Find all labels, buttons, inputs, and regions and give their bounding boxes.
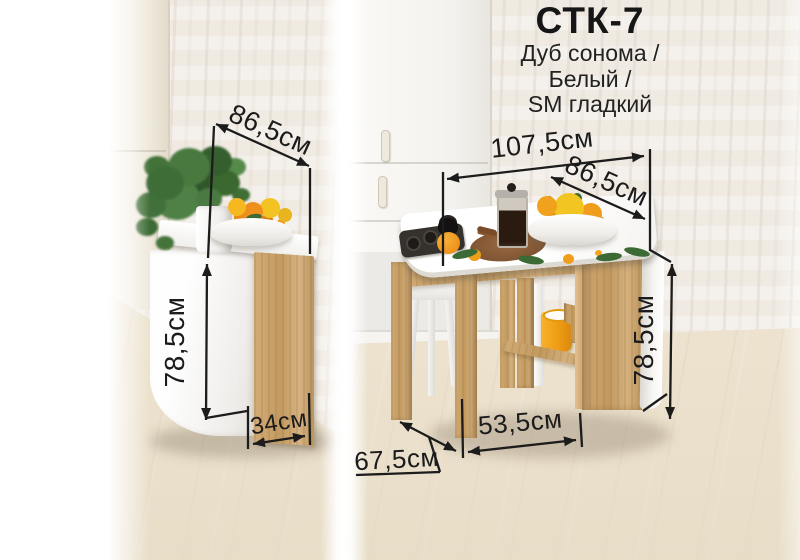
- fruit-bowl: [210, 218, 292, 246]
- cabinet-handle: [378, 176, 387, 208]
- fruit-bowl: [528, 214, 616, 245]
- product-finish-line3: SM гладкий: [462, 92, 718, 118]
- product-title-block: СТК-7 Дуб сонома / Белый / SM гладкий: [462, 2, 718, 118]
- table-leg: [391, 262, 412, 420]
- right-white-vignette: [778, 0, 800, 560]
- product-finish-line2: Белый /: [462, 67, 718, 93]
- coffee-cup: [423, 230, 438, 245]
- folded-table-leaf-wood: [254, 252, 314, 446]
- left-white-vignette: [0, 0, 150, 560]
- product-model: СТК-7: [462, 2, 718, 41]
- fruit-cluster: [537, 196, 557, 216]
- table-leg: [455, 268, 477, 438]
- table-pedestal-panel: [500, 280, 515, 388]
- coffee-cup: [406, 236, 421, 251]
- loose-oranges: [437, 232, 460, 254]
- chair-leg: [428, 300, 435, 396]
- french-press-knob: [507, 183, 516, 192]
- product-photo-scene: 86,5см 78,5см 34см 107,5см 86,5см: [0, 0, 800, 560]
- folded-white-leaf: [640, 251, 665, 409]
- table-pedestal-panel: [517, 278, 534, 388]
- image-divider-glow: [320, 0, 368, 560]
- french-press: [497, 196, 528, 248]
- cabinet-handle: [381, 130, 390, 162]
- fruit-cluster: [228, 198, 246, 216]
- folded-table-side-panel: [150, 250, 256, 436]
- table-side-panel: [582, 246, 642, 410]
- product-finish-line1: Дуб сонома /: [462, 41, 718, 67]
